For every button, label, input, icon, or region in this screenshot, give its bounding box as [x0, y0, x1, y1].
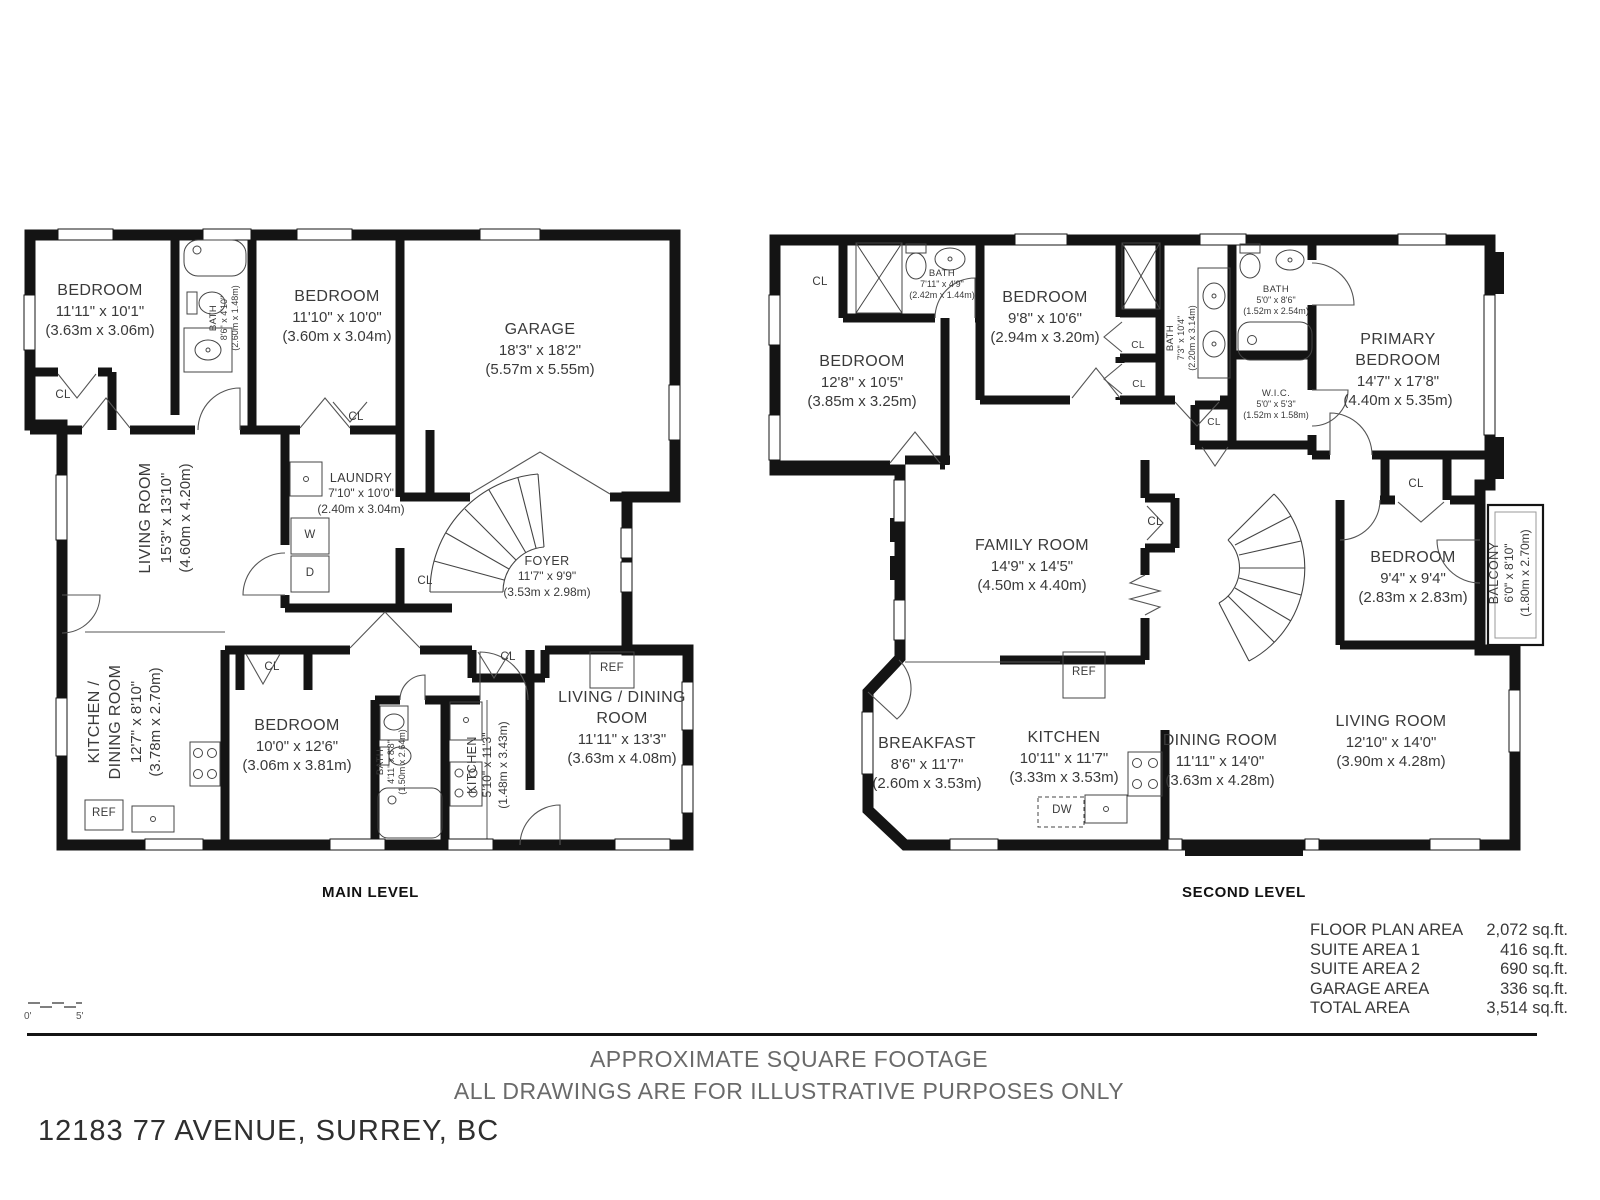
fridge-label: REF — [590, 662, 634, 674]
room-dim-imperial: 7'3" x 10'4" — [1176, 273, 1187, 403]
room-dim-imperial: 11'7" x 9'9" — [462, 569, 632, 585]
room-label-second-family: FAMILY ROOM 14'9" x 14'5" (4.50m x 4.40m… — [922, 536, 1142, 596]
room-dim-imperial: 8'6" x 4'10" — [219, 243, 230, 393]
room-dim-imperial: 5'0" x 8'6" — [1201, 295, 1351, 306]
toilet-icon — [187, 292, 197, 314]
room-name: BATH — [1165, 273, 1176, 403]
room-label-second-balcony: BALCONY 6'0" x 8'10" (1.80m x 2.70m) — [1486, 503, 1540, 643]
second-level-title: SECOND LEVEL — [1182, 884, 1306, 901]
room-dim-imperial: 11'11" x 13'3" — [537, 730, 707, 750]
room-dim-metric: (3.63m x 3.06m) — [20, 321, 180, 341]
room-name: BATH — [1201, 284, 1351, 295]
room-label-second-dining: DINING ROOM 11'11" x 14'0" (3.63m x 4.28… — [1120, 731, 1320, 791]
room-label-main-laundry: LAUNDRY 7'10" x 10'0" (2.40m x 3.04m) — [276, 470, 446, 517]
room-dim-metric: (4.60m x 4.20m) — [176, 418, 196, 618]
sink-icon — [1085, 795, 1127, 823]
room-label-main-bedroom3: BEDROOM 10'0" x 12'6" (3.06m x 3.81m) — [207, 716, 387, 776]
room-dim-imperial: 15'3" x 13'10" — [157, 418, 177, 618]
room-name: FAMILY ROOM — [922, 536, 1142, 557]
room-dim-imperial: 14'7" x 17'8" — [1328, 372, 1468, 392]
room-label-main-living-dining: LIVING / DINING ROOM 11'11" x 13'3" (3.6… — [537, 688, 707, 769]
room-name: BATH — [375, 697, 386, 827]
closet-label: CL — [48, 389, 78, 401]
room-label-main-bath1: BATH 8'6" x 4'10" (2.60m x 1.48m) — [208, 243, 252, 393]
scale-start-label: 0' — [24, 1011, 31, 1022]
area-row: FLOOR PLAN AREA 2,072 sq.ft. — [1310, 921, 1568, 941]
area-label: TOTAL AREA — [1310, 999, 1410, 1019]
area-value: 336 sq.ft. — [1500, 980, 1568, 1000]
room-name: BEDROOM — [20, 281, 180, 302]
room-dim-imperial: 10'0" x 12'6" — [207, 737, 387, 757]
room-dim-imperial: 18'3" x 18'2" — [440, 341, 640, 361]
room-name: BEDROOM — [1328, 548, 1498, 569]
room-dim-imperial: 7'10" x 10'0" — [276, 486, 446, 502]
room-label-main-garage: GARAGE 18'3" x 18'2" (5.57m x 5.55m) — [440, 320, 640, 380]
room-label-main-living: LIVING ROOM 15'3" x 13'10" (4.60m x 4.20… — [136, 418, 198, 618]
area-value: 3,514 sq.ft. — [1486, 999, 1568, 1019]
area-row: TOTAL AREA 3,514 sq.ft. — [1310, 999, 1568, 1019]
area-row: SUITE AREA 1 416 sq.ft. — [1310, 941, 1568, 961]
room-dim-imperial: 4'11" x 8'8" — [386, 697, 397, 827]
room-dim-metric: (4.50m x 4.40m) — [922, 576, 1142, 596]
area-row: SUITE AREA 2 690 sq.ft. — [1310, 960, 1568, 980]
room-name: BEDROOM — [772, 352, 952, 373]
room-dim-metric: (3.60m x 3.04m) — [252, 327, 422, 347]
closet-label: CL — [1123, 379, 1155, 390]
room-name: BATH — [867, 268, 1017, 279]
room-name: FOYER — [462, 553, 632, 569]
scale-bar — [28, 1003, 82, 1007]
room-dim-metric: (3.90m x 4.28m) — [1291, 752, 1491, 772]
room-dim-metric: (3.63m x 4.28m) — [1120, 771, 1320, 791]
closet-label: CL — [805, 276, 835, 288]
room-name: BEDROOM — [955, 288, 1135, 309]
room-label-main-bedroom1: BEDROOM 11'11" x 10'1" (3.63m x 3.06m) — [20, 281, 180, 341]
disclaimer-line2: ALL DRAWINGS ARE FOR ILLUSTRATIVE PURPOS… — [0, 1078, 1578, 1105]
room-dim-imperial: 14'9" x 14'5" — [922, 557, 1142, 577]
area-label: FLOOR PLAN AREA — [1310, 921, 1463, 941]
room-label-main-kitchen-dining: KITCHEN / DINING ROOM 12'7" x 8'10" (3.7… — [85, 662, 175, 782]
sink-icon — [935, 248, 965, 270]
room-dim-metric: (5.57m x 5.55m) — [440, 360, 640, 380]
room-dim-metric: (3.06m x 3.81m) — [207, 756, 387, 776]
room-dim-imperial: 12'7" x 8'10" — [127, 662, 147, 782]
room-label-second-bedroom1: BEDROOM 12'8" x 10'5" (3.85m x 3.25m) — [772, 352, 952, 412]
room-dim-metric: (3.53m x 2.98m) — [462, 585, 632, 601]
fridge-label: REF — [1062, 666, 1106, 678]
room-name: LIVING ROOM — [1291, 712, 1491, 733]
area-row: GARAGE AREA 336 sq.ft. — [1310, 980, 1568, 1000]
closet-label: CL — [410, 575, 440, 587]
disclaimer-line1: APPROXIMATE SQUARE FOOTAGE — [0, 1046, 1578, 1073]
area-value: 416 sq.ft. — [1500, 941, 1568, 961]
room-dim-metric: (1.50m x 2.64m) — [397, 697, 408, 827]
room-name: KITCHEN — [464, 690, 480, 840]
room-label-main-bath2: BATH 4'11" x 8'8" (1.50m x 2.64m) — [375, 697, 415, 827]
room-dim-metric: (4.40m x 5.35m) — [1328, 391, 1468, 411]
dryer-label: D — [295, 567, 325, 579]
room-dim-imperial: 11'11" x 10'1" — [20, 302, 180, 322]
room-label-second-bedroom2: BEDROOM 9'8" x 10'6" (2.94m x 3.20m) — [955, 288, 1135, 348]
room-label-second-primary: PRIMARY BEDROOM 14'7" x 17'8" (4.40m x 5… — [1328, 330, 1468, 411]
area-label: SUITE AREA 2 — [1310, 960, 1420, 980]
room-name: BALCONY — [1486, 503, 1502, 643]
fridge-label: REF — [84, 807, 124, 819]
room-dim-metric: (2.94m x 3.20m) — [955, 328, 1135, 348]
room-name: LIVING ROOM — [136, 418, 157, 618]
area-summary: FLOOR PLAN AREA 2,072 sq.ft. SUITE AREA … — [1310, 921, 1568, 1019]
room-dim-metric: (2.40m x 3.04m) — [276, 502, 446, 518]
room-label-second-bath3: BATH 5'0" x 8'6" (1.52m x 2.54m) — [1201, 284, 1351, 317]
closet-label: CL — [1398, 478, 1434, 490]
closet-label: CL — [341, 411, 371, 423]
area-value: 690 sq.ft. — [1500, 960, 1568, 980]
floor-plan-sheet: BEDROOM 11'11" x 10'1" (3.63m x 3.06m) B… — [0, 0, 1600, 1200]
room-name: PRIMARY BEDROOM — [1328, 330, 1468, 372]
second-level-stairs-icon — [1219, 494, 1305, 661]
room-dim-metric: (2.20m x 3.14m) — [1187, 273, 1198, 403]
scale-end-label: 5' — [76, 1011, 83, 1022]
sink-icon — [1276, 250, 1304, 270]
room-dim-metric: (2.60m x 1.48m) — [230, 243, 241, 393]
room-label-second-living: LIVING ROOM 12'10" x 14'0" (3.90m x 4.28… — [1291, 712, 1491, 772]
room-dim-metric: (3.78m x 2.70m) — [146, 662, 166, 782]
room-dim-metric: (1.80m x 2.70m) — [1518, 503, 1534, 643]
room-name: KITCHEN / DINING ROOM — [85, 662, 127, 782]
dishwasher-label: DW — [1040, 804, 1084, 816]
room-dim-imperial: 5'10" x 11'3" — [480, 690, 496, 840]
room-name: LAUNDRY — [276, 470, 446, 486]
room-name: BEDROOM — [252, 287, 422, 308]
closet-label: CL — [1198, 417, 1230, 428]
room-name: GARAGE — [440, 320, 640, 341]
room-dim-metric: (3.63m x 4.08m) — [537, 749, 707, 769]
room-name: BEDROOM — [207, 716, 387, 737]
room-label-main-bedroom2: BEDROOM 11'10" x 10'0" (3.60m x 3.04m) — [252, 287, 422, 347]
room-dim-imperial: 11'11" x 14'0" — [1120, 752, 1320, 772]
room-dim-metric: (2.83m x 2.83m) — [1328, 588, 1498, 608]
area-label: GARAGE AREA — [1310, 980, 1429, 1000]
closet-label: CL — [493, 651, 523, 663]
closet-label: CL — [257, 661, 287, 673]
room-dim-imperial: 12'10" x 14'0" — [1291, 733, 1491, 753]
room-label-main-foyer: FOYER 11'7" x 9'9" (3.53m x 2.98m) — [462, 553, 632, 600]
room-label-main-kitchen: KITCHEN 5'10" x 11'3" (1.48m x 3.43m) — [464, 690, 516, 840]
area-value: 2,072 sq.ft. — [1486, 921, 1568, 941]
room-dim-imperial: 11'10" x 10'0" — [252, 308, 422, 328]
washer-label: W — [295, 529, 325, 541]
closet-label: CL — [1139, 516, 1171, 528]
room-dim-metric: (1.48m x 3.43m) — [496, 690, 512, 840]
closet-label: CL — [1122, 340, 1154, 351]
main-level-title: MAIN LEVEL — [322, 884, 419, 901]
sink-icon — [132, 806, 174, 832]
room-name: DINING ROOM — [1120, 731, 1320, 752]
area-label: SUITE AREA 1 — [1310, 941, 1420, 961]
room-dim-imperial: 9'4" x 9'4" — [1328, 569, 1498, 589]
room-dim-imperial: 6'0" x 8'10" — [1502, 503, 1518, 643]
room-dim-metric: (1.52m x 2.54m) — [1201, 306, 1351, 317]
room-label-second-bedroom3: BEDROOM 9'4" x 9'4" (2.83m x 2.83m) — [1328, 548, 1498, 608]
property-address: 12183 77 AVENUE, SURREY, BC — [38, 1115, 499, 1148]
divider-line — [27, 1033, 1537, 1036]
room-name: BATH — [208, 243, 219, 393]
room-dim-imperial: 12'8" x 10'5" — [772, 373, 952, 393]
room-dim-imperial: 9'8" x 10'6" — [955, 309, 1135, 329]
room-name: LIVING / DINING ROOM — [537, 688, 707, 730]
room-dim-metric: (3.85m x 3.25m) — [772, 392, 952, 412]
